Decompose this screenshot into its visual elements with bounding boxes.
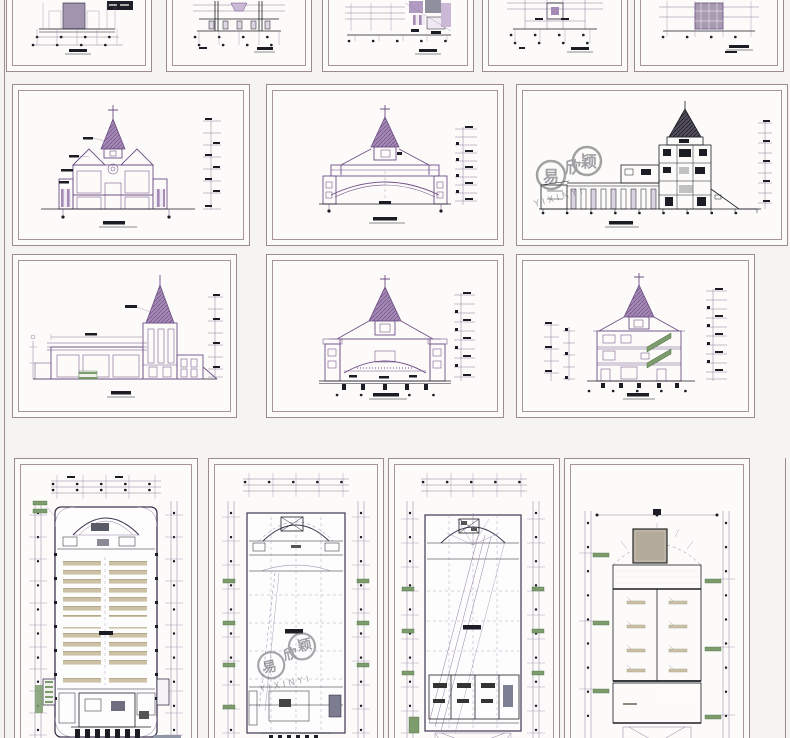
drawing-set-preview: 易 欣 颖 YIXINYI [0, 0, 790, 738]
sheet-mat [488, 0, 622, 66]
entrance-elevation [319, 105, 451, 213]
level-dimension-column [203, 118, 221, 209]
svg-text:颖: 颖 [581, 152, 597, 171]
sheet-mat [272, 90, 498, 240]
watermark-seal: 易 欣 颖 YIXINYI [532, 147, 601, 210]
sheet-mat: 易 欣 颖 YIXINYI [214, 464, 378, 738]
sheet-title-mark [369, 217, 405, 223]
sheet-mat [272, 260, 498, 412]
sheet-title-mark [99, 221, 137, 227]
svg-text:欣: 欣 [565, 158, 581, 177]
sheet-roof-plan [564, 458, 750, 738]
roof-plan-drawing [577, 471, 737, 738]
side-elevation-linework [29, 275, 217, 379]
right-level-column [706, 288, 727, 381]
side-elevation-drawing [25, 267, 224, 405]
entrance-arch-drawing [279, 97, 491, 233]
plan-fragment-2-drawing [179, 0, 299, 59]
longitudinal-section-drawing: 易 欣 颖 YIXINYI [529, 97, 775, 233]
sheet-mat [172, 0, 306, 66]
sheet-mat [18, 90, 244, 240]
cross-section-drawing [279, 267, 491, 405]
left-level-columns [544, 322, 575, 381]
gallery-floor-plan-drawing: 易 欣 颖 YIXINYI [221, 471, 371, 738]
sheet-plan-fragment-5 [634, 0, 784, 72]
upper-plan [425, 513, 521, 738]
sheet-plan-fragment-1 [6, 0, 152, 72]
sheet-mat [328, 0, 468, 66]
sheet-upper-floor-plan [388, 458, 560, 738]
sheet-mat [12, 0, 146, 66]
sheet-mat [522, 260, 749, 412]
sheet-entrance-arch-elevation [266, 84, 504, 246]
upper-floor-plan-drawing [401, 471, 547, 738]
plan-fragment-4-drawing [495, 0, 615, 59]
level-dimension-column [758, 120, 772, 209]
level-dimension-column [455, 126, 477, 205]
plan-fragment-1-drawing [19, 0, 139, 59]
svg-text:YIXINYI: YIXINYI [532, 186, 587, 210]
svg-text:易: 易 [543, 167, 559, 186]
sheet-cross-section-arch [266, 254, 504, 418]
sheet-title-mark [623, 393, 655, 399]
sheet-front-elevation [12, 84, 250, 246]
sheet-mat [394, 464, 554, 738]
sheet-mat [570, 464, 744, 738]
sheet-title-mark [369, 393, 407, 399]
sheet-longitudinal-section: 易 欣 颖 YIXINYI [516, 84, 788, 246]
callout-labels [59, 137, 105, 184]
front-elevation-drawing [25, 97, 237, 233]
plan-fragment-5-drawing [647, 0, 771, 59]
sheet-gallery-floor-plan: 易 欣 颖 YIXINYI [208, 458, 384, 738]
plan-fragment-3-drawing [335, 0, 461, 59]
cropped-left-sheet-edge [4, 0, 5, 738]
church-facade [41, 105, 195, 219]
cropped-right-sheet-edge [785, 458, 786, 738]
sheet-mat [640, 0, 778, 66]
level-dimension-column [454, 292, 475, 381]
sheet-mat [18, 260, 231, 412]
sheet-plan-fragment-3 [322, 0, 474, 72]
sheet-mat [20, 464, 192, 738]
sheet-stair-section [516, 254, 755, 418]
stair-section-linework [587, 273, 695, 391]
ground-floor-plan-drawing [27, 471, 185, 738]
sheet-plan-fragment-4 [482, 0, 628, 72]
sheet-title-mark [107, 391, 135, 397]
sheet-plan-fragment-2 [166, 0, 312, 72]
roof-surfaces [613, 523, 701, 738]
sheet-side-elevation [12, 254, 237, 418]
gallery-plan [247, 513, 345, 738]
level-dimension-column [208, 294, 223, 379]
sheet-title-mark [605, 221, 639, 227]
sheet-ground-floor-plan [14, 458, 198, 738]
stair-section-drawing [529, 267, 742, 405]
sheet-mat: 易 欣 颖 YIXINYI [522, 90, 782, 240]
cross-section-linework [319, 275, 451, 395]
